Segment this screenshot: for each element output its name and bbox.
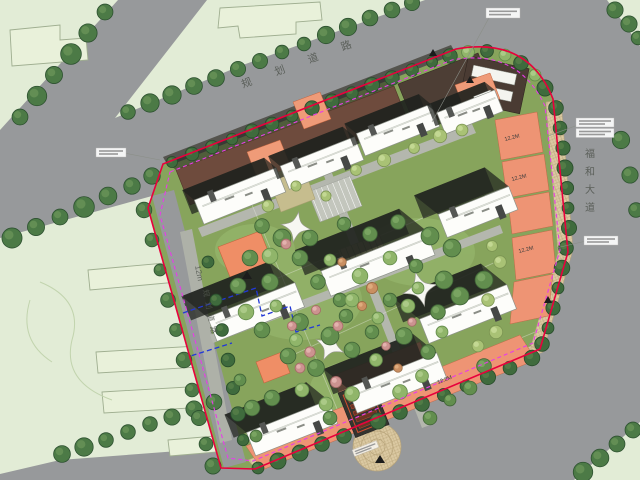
tree (494, 256, 507, 269)
tree (472, 340, 484, 352)
tree (421, 227, 439, 245)
tree (262, 274, 279, 291)
tree (444, 394, 456, 406)
tree (431, 305, 446, 320)
tree (423, 411, 437, 425)
tree (250, 430, 262, 442)
tree (338, 258, 347, 267)
tree (382, 342, 391, 351)
tree (242, 250, 258, 266)
tree (238, 304, 254, 320)
tree (292, 250, 308, 266)
tree (186, 78, 203, 95)
tree (345, 387, 360, 402)
tree (607, 2, 623, 18)
tree (12, 109, 28, 125)
tree (330, 376, 341, 387)
tree (366, 282, 377, 293)
tree (141, 94, 159, 112)
tree (270, 300, 282, 312)
tree (365, 325, 379, 339)
site-plan-canvas: 规 划 道 路 福和大道 12m 规划道路 12.2M 12.2M 12.2M … (0, 0, 640, 480)
tree (275, 45, 289, 59)
tree (463, 381, 477, 395)
tree (311, 275, 326, 290)
tree (351, 165, 362, 176)
tree (433, 129, 446, 142)
tree (255, 219, 270, 234)
tree (185, 383, 199, 397)
tree (549, 101, 564, 116)
tree (254, 322, 270, 338)
tree (323, 411, 337, 425)
tree (435, 271, 453, 289)
tree (412, 282, 424, 294)
tree (291, 181, 301, 191)
tree (2, 228, 22, 248)
tree (163, 86, 181, 104)
tree (54, 446, 71, 463)
tree (290, 334, 303, 347)
tree (396, 328, 413, 345)
right-road-label: 福和大道 (583, 147, 595, 220)
tree (482, 294, 495, 307)
tree (208, 70, 225, 87)
tree (324, 254, 336, 266)
tree (305, 347, 316, 358)
tree (362, 10, 378, 26)
tree (409, 143, 420, 154)
tree (74, 197, 95, 218)
tree (372, 312, 384, 324)
tree (625, 422, 640, 438)
tree (487, 241, 498, 252)
tree (280, 348, 296, 364)
tree (394, 364, 403, 373)
tree (262, 248, 278, 264)
tree (202, 256, 214, 268)
tree (295, 363, 305, 373)
tree (252, 53, 267, 68)
tree (393, 385, 408, 400)
tree (370, 354, 383, 367)
tree (383, 293, 397, 307)
tree (27, 86, 47, 106)
tree (231, 407, 246, 422)
tree (456, 124, 468, 136)
tree (264, 390, 280, 406)
tree (121, 425, 136, 440)
tree (451, 287, 469, 305)
tree (612, 131, 629, 148)
tree (97, 4, 113, 20)
tree (281, 239, 291, 249)
tree (244, 400, 260, 416)
tree (295, 383, 309, 397)
tree (321, 191, 331, 201)
tree (409, 259, 423, 273)
tree (287, 321, 296, 330)
tree (319, 397, 333, 411)
tree (384, 2, 400, 18)
tree (124, 178, 141, 195)
tree (99, 433, 114, 448)
tree (475, 271, 493, 289)
tree (191, 410, 206, 425)
tree (333, 321, 343, 331)
tree (339, 18, 356, 35)
tree (383, 251, 397, 265)
tree (143, 417, 158, 432)
tree (377, 153, 390, 166)
tree (609, 436, 625, 452)
tree (52, 209, 68, 225)
tree (416, 370, 429, 383)
tree (199, 437, 213, 451)
tree (75, 438, 93, 456)
tree (621, 16, 637, 32)
tree (337, 217, 351, 231)
tree (27, 218, 44, 235)
tree (230, 278, 246, 294)
tree (339, 309, 353, 323)
tree (99, 187, 117, 205)
tree (121, 105, 136, 120)
site-plan-map: 规 划 道 路 福和大道 12m 规划道路 12.2M 12.2M 12.2M … (0, 0, 640, 480)
tree (297, 37, 311, 51)
tree (311, 305, 320, 314)
tree (230, 61, 245, 76)
tree (393, 405, 408, 420)
tree (408, 318, 417, 327)
tree (317, 26, 334, 43)
tree (45, 66, 62, 83)
tree (357, 301, 366, 310)
tree (237, 434, 248, 445)
tree (164, 409, 180, 425)
tree (559, 241, 574, 256)
tree (363, 227, 378, 242)
tree (622, 167, 638, 183)
tree (79, 24, 97, 42)
tree (401, 299, 415, 313)
tree (561, 220, 576, 235)
tree (591, 449, 609, 467)
tree (345, 293, 359, 307)
tree (573, 462, 593, 480)
tree (352, 268, 368, 284)
tree (436, 326, 448, 338)
tree (61, 44, 82, 65)
tree (421, 345, 436, 360)
tree (262, 200, 274, 212)
tree (391, 215, 406, 230)
tree (221, 353, 235, 367)
tree (489, 325, 502, 338)
tree (234, 374, 246, 386)
tree (344, 342, 360, 358)
tree (629, 203, 640, 218)
tree (308, 360, 325, 377)
tree (443, 239, 461, 257)
tree (302, 230, 318, 246)
